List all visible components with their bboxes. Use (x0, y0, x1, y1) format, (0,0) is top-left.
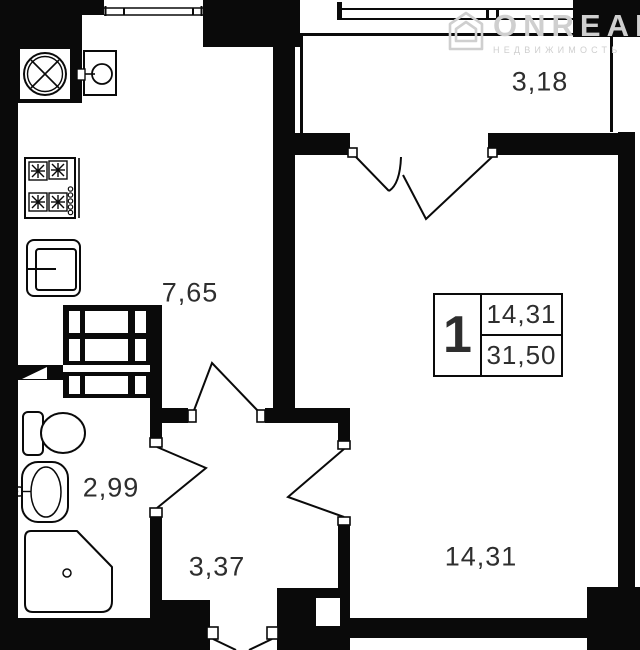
kitchen-window-icon (104, 6, 203, 16)
legend-areas: 14,31 31,50 (482, 295, 561, 375)
legend-living-area: 14,31 (482, 295, 561, 336)
legend-total-area: 31,50 (482, 336, 561, 375)
shaft-notch (316, 598, 340, 626)
room-label-bathroom: 2,99 (83, 473, 140, 504)
door-swing-balcony (356, 157, 492, 219)
fridge-icon (27, 240, 80, 296)
floor-plan-page: 7,65 3,18 2,99 3,37 14,31 1 14,31 31,50 … (0, 0, 640, 650)
room-label-balcony: 3,18 (512, 67, 569, 98)
door-swing-living (288, 449, 344, 517)
stove-icon (25, 158, 79, 218)
door-swing-kitchen (193, 363, 258, 413)
room-label-living: 14,31 (445, 542, 518, 573)
door-swing-bathroom (157, 447, 206, 508)
shower-tray-icon (25, 531, 112, 612)
kitchen-sink-icon (77, 51, 116, 95)
room-label-hallway: 3,37 (189, 552, 246, 583)
ventilation-icon (20, 49, 70, 99)
legend-box: 1 14,31 31,50 (433, 293, 563, 377)
door-swing-entrance (213, 639, 272, 650)
legend-room-count: 1 (435, 295, 482, 375)
toilet-icon (23, 412, 85, 455)
room-label-kitchen: 7,65 (162, 278, 219, 309)
